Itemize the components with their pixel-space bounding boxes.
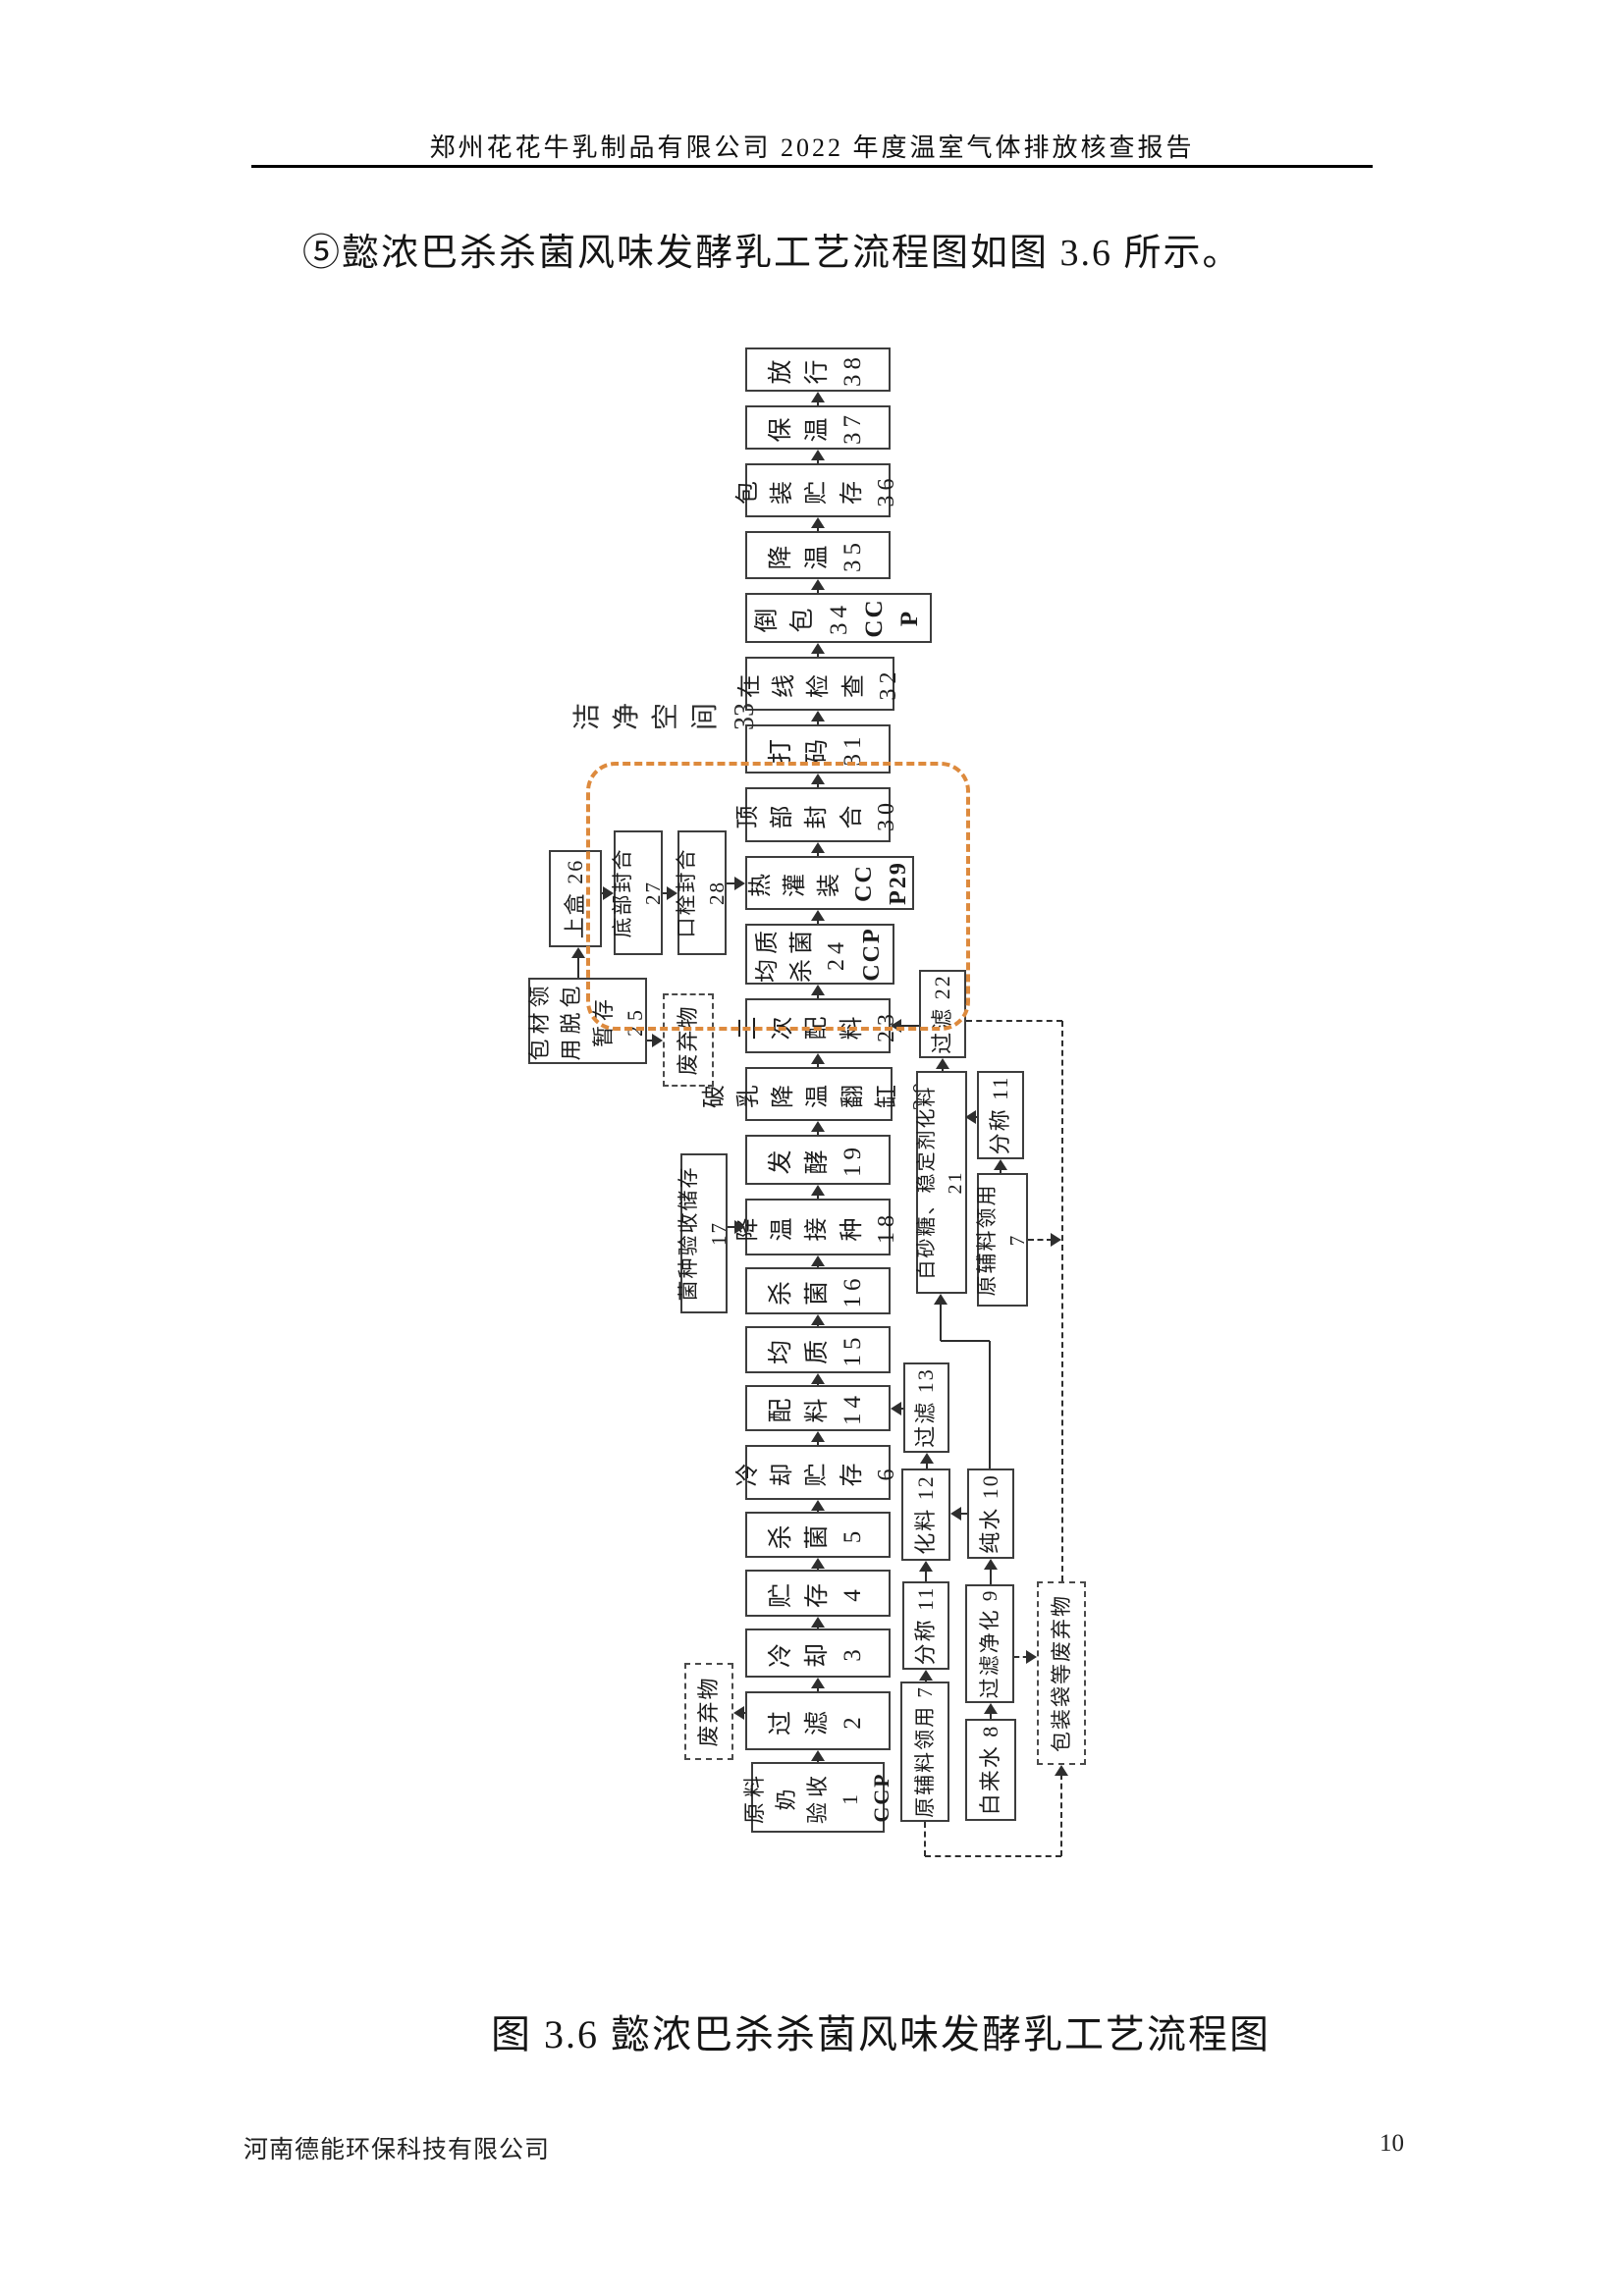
flow-arrowhead [667,886,677,900]
flow-arrow [990,1568,992,1584]
flow-arrowhead [811,392,825,402]
flow-node-label: 降 温 35 [764,538,872,572]
ccp-marker: CCP [855,927,889,981]
flow-node-filter-22: 过滤 22 [919,970,966,1058]
flow-arrowhead [1055,1765,1068,1776]
flow-node-label: 原料奶 验收 1 [739,1764,865,1831]
flow-arrowhead [811,1053,825,1064]
flow-node-sterilization-16: 杀 菌 16 [745,1267,891,1314]
flow-node-incubation-37: 保 温 37 [745,405,891,450]
flow-arrow [1060,1774,1062,1856]
footer-page-number: 10 [1345,2130,1404,2158]
flow-node-weighing-11-upper: 分称 11 [977,1071,1024,1159]
flow-node-material-requisition-7-lower: 原辅料领用 7 [900,1682,949,1822]
flow-node-label: 白砂糖、稳定剂化料 21 [913,1073,970,1292]
header-rule [251,165,1373,168]
flow-arrowhead [891,1019,901,1033]
flow-node-label: 原辅料领用 7 [910,1685,941,1818]
flow-line [925,1855,1061,1857]
flow-arrowhead [603,886,614,900]
flow-arrowhead [811,517,825,528]
flow-node-sterilization-5: 杀 菌 5 [745,1512,891,1558]
flow-arrowhead [994,1159,1007,1170]
flow-arrowhead [950,1507,961,1521]
flow-node-label: 过滤净化 9 [975,1589,1005,1699]
flow-node-waste-upper: 废弃物 [663,993,714,1087]
flow-node-label: 分称 11 [985,1076,1016,1155]
flow-node-label: 保 温 37 [764,410,872,445]
flow-node-label: 过滤 22 [927,974,958,1054]
flow-arrowhead [811,1255,825,1266]
flow-node-label: 菌种验收储存 17 [674,1155,733,1311]
flow-arrowhead [811,1558,825,1569]
flow-arrowhead [811,450,825,460]
flow-node-label: 纯水 10 [975,1473,1006,1554]
flow-arrowhead [811,985,825,995]
flow-node-raw-milk-acceptance-1: 原料奶 验收 1CCP [751,1762,885,1833]
flow-arrowhead [891,1402,901,1415]
flow-node-label: 配 料 14 [764,1391,872,1425]
flow-arrowhead [811,1314,825,1325]
flow-node-label: 杀 菌 16 [764,1274,872,1308]
footer-company: 河南德能环保科技有限公司 [244,2130,550,2165]
flow-node-label: 破乳 降温 翻缸 20 [698,1069,939,1119]
flow-node-label: 过 滤 2 [764,1706,872,1735]
flow-arrowhead [965,1110,976,1124]
flow-node-label: 分称 11 [910,1586,942,1666]
flow-node-label: 降温 接种 18 [731,1201,903,1254]
flow-arrowhead [920,1453,934,1464]
flow-arrowhead [934,1294,947,1305]
flow-node-label: 发 酵 19 [764,1143,872,1177]
flow-node-weighing-11-lower: 分称 11 [902,1581,949,1670]
flow-node-label: 化料 12 [910,1474,942,1555]
flow-node-repacking-34: 倒 包 34CC P [745,593,932,643]
flow-node-material-requisition-7-upper: 原辅料领用 7 [977,1173,1028,1307]
flow-node-label: 杀 菌 5 [764,1514,872,1556]
ccp-marker: CC P29 [847,861,914,905]
process-flowchart-rotated-canvas: 原料奶 验收 1CCP过 滤 2冷 却 3贮 存 4杀 菌 5冷却 贮存 6配 … [515,304,1124,1914]
ccp-marker: CC P [857,598,927,637]
flow-arrowhead [811,1678,825,1688]
flow-node-packaging-storage-36: 包装 贮存 36 [745,463,891,517]
flow-node-label: 打 码 31 [764,732,872,767]
flow-node-label: 过滤 13 [910,1367,942,1448]
flow-node-online-inspection-32: 在线 检查 32 [745,657,894,711]
flow-arrowhead [811,1185,825,1196]
flow-node-label: 均质 杀菌 24 [751,926,854,983]
flow-arrowhead [936,1058,949,1069]
flow-arrowhead [811,910,825,921]
flow-node-label: 热灌 装 [744,858,847,908]
flow-arrowhead [652,1034,663,1047]
clean-room-label: 洁 净 空 间 33 [568,695,765,738]
flow-node-label: 口栓封合 28 [672,832,731,953]
flow-node-waste-lower: 废弃物 [684,1663,733,1760]
flow-node-cooling-35: 降 温 35 [745,531,891,579]
flow-node-box-loading-26: 上盒 26 [549,850,602,947]
flow-node-label: 冷 却 3 [764,1638,872,1668]
flow-arrowhead [811,1373,825,1384]
flow-arrowhead [571,947,585,958]
flow-node-filter-13: 过滤 13 [903,1362,949,1453]
flow-node-label: 贮 存 4 [764,1572,872,1615]
flow-node-spout-sealing-28: 口栓封合 28 [677,830,727,955]
flow-arrowhead [811,643,825,654]
flow-arrowhead [811,1121,825,1132]
flow-arrowhead [984,1559,998,1570]
flow-arrowhead [811,1431,825,1442]
flow-node-label: 底部封合 27 [608,832,668,953]
flow-line [966,1020,1062,1022]
flow-node-filtration-purification-9: 过滤净化 9 [965,1584,1014,1703]
flow-node-ingredients-14: 配 料 14 [745,1385,891,1431]
flow-arrowhead [811,842,825,853]
flow-node-packaging-bag-waste: 包装袋等废弃物 [1037,1581,1086,1765]
flow-node-bottom-sealing-27: 底部封合 27 [614,830,663,955]
flow-node-label: 废弃物 [673,1005,704,1076]
flow-arrowhead [811,579,825,590]
flow-node-label: 上盒 26 [560,859,591,939]
process-flowchart-figure: 原料奶 验收 1CCP过 滤 2冷 却 3贮 存 4杀 菌 5冷却 贮存 6配 … [515,304,1124,1914]
flow-arrowhead [919,1561,933,1572]
ccp-marker: CCP [866,1772,896,1822]
flow-node-label: 包装 贮存 36 [731,465,903,515]
flow-arrowhead [811,774,825,784]
flow-node-packaging-material-staging-25: 包材领 用脱包 暂存 25 [528,978,647,1064]
flow-arrowhead [734,877,745,890]
flow-arrowhead [1026,1650,1037,1664]
paragraph-figure-intro: ⑤懿浓巴杀杀菌风味发酵乳工艺流程图如图 3.6 所示。 [302,222,1242,276]
flow-node-fermentation-19: 发 酵 19 [745,1135,891,1185]
report-page: { "header": { "title": "郑州花花牛乳制品有限公司 202… [0,0,1624,2296]
flow-node-coding-31: 打 码 31 [745,724,891,774]
flow-node-pure-water-10: 纯水 10 [967,1468,1014,1559]
flow-line [924,1822,926,1856]
flow-arrow [1028,1239,1053,1241]
flow-node-label: 顶部 封合 30 [731,789,903,840]
flow-node-label: 倒 包 34 [750,601,858,635]
flow-node-label: 包装袋等废弃物 [1047,1594,1077,1752]
flow-arrowhead [734,1220,745,1234]
flow-arrowhead [811,711,825,721]
flow-arrowhead [811,1750,825,1761]
flow-node-homogenize-sterilize-24: 均质 杀菌 24CCP [745,924,894,985]
flow-arrow [940,1303,942,1341]
flow-line [989,1341,991,1468]
flow-node-demulsify-cool-tank-20: 破乳 降温 翻缸 20 [745,1067,893,1121]
flow-arrow [577,956,579,978]
flow-node-hot-filling-29: 热灌 装CC P29 [745,856,914,910]
flow-node-starter-acceptance-storage-17: 菌种验收储存 17 [680,1153,728,1313]
flow-node-secondary-ingredients-23: 二次 配料 23 [745,998,891,1053]
flow-node-label: 包材领 用脱包 暂存 25 [524,980,650,1062]
flow-arrowhead [811,1617,825,1628]
flow-arrowhead [919,1670,933,1681]
flow-node-label: 废弃物 [693,1677,725,1747]
flow-arrow [899,1025,919,1027]
flow-node-filter-2: 过 滤 2 [745,1691,891,1750]
flow-node-label: 二次 配料 23 [731,1000,903,1051]
flow-line [1061,1021,1063,1581]
flow-node-storage-4: 贮 存 4 [745,1570,891,1617]
flow-node-label: 冷却 贮存 6 [731,1447,903,1498]
flow-node-homogenization-15: 均 质 15 [745,1326,891,1373]
header-title: 郑州花花牛乳制品有限公司 2022 年度温室气体排放核查报告 [0,128,1624,164]
flow-node-cooling-inoculation-18: 降温 接种 18 [745,1199,891,1255]
flow-arrowhead [984,1703,998,1714]
flow-line [941,1340,990,1342]
flow-arrowhead [1051,1233,1061,1247]
figure-caption: 图 3.6 懿浓巴杀杀菌风味发酵乳工艺流程图 [491,2002,1271,2059]
flow-node-label: 均 质 15 [764,1333,872,1367]
flow-arrowhead [811,1500,825,1511]
flow-node-cooling-3: 冷 却 3 [745,1629,891,1678]
flow-node-release-38: 放 行 38 [745,347,891,392]
flow-node-label: 白来水 8 [975,1725,1006,1816]
flow-node-top-sealing-30: 顶部 封合 30 [745,787,891,842]
flow-node-tap-water-8: 白来水 8 [965,1719,1016,1821]
flow-node-dissolving-12: 化料 12 [901,1468,950,1561]
flow-node-label: 放 行 38 [764,352,872,387]
flow-node-label: 原辅料领用 7 [972,1175,1032,1305]
flow-arrowhead [733,1706,744,1720]
flow-node-sugar-stabilizer-dissolving-21: 白砂糖、稳定剂化料 21 [916,1071,967,1294]
flow-node-cooling-storage-6: 冷却 贮存 6 [745,1445,891,1500]
